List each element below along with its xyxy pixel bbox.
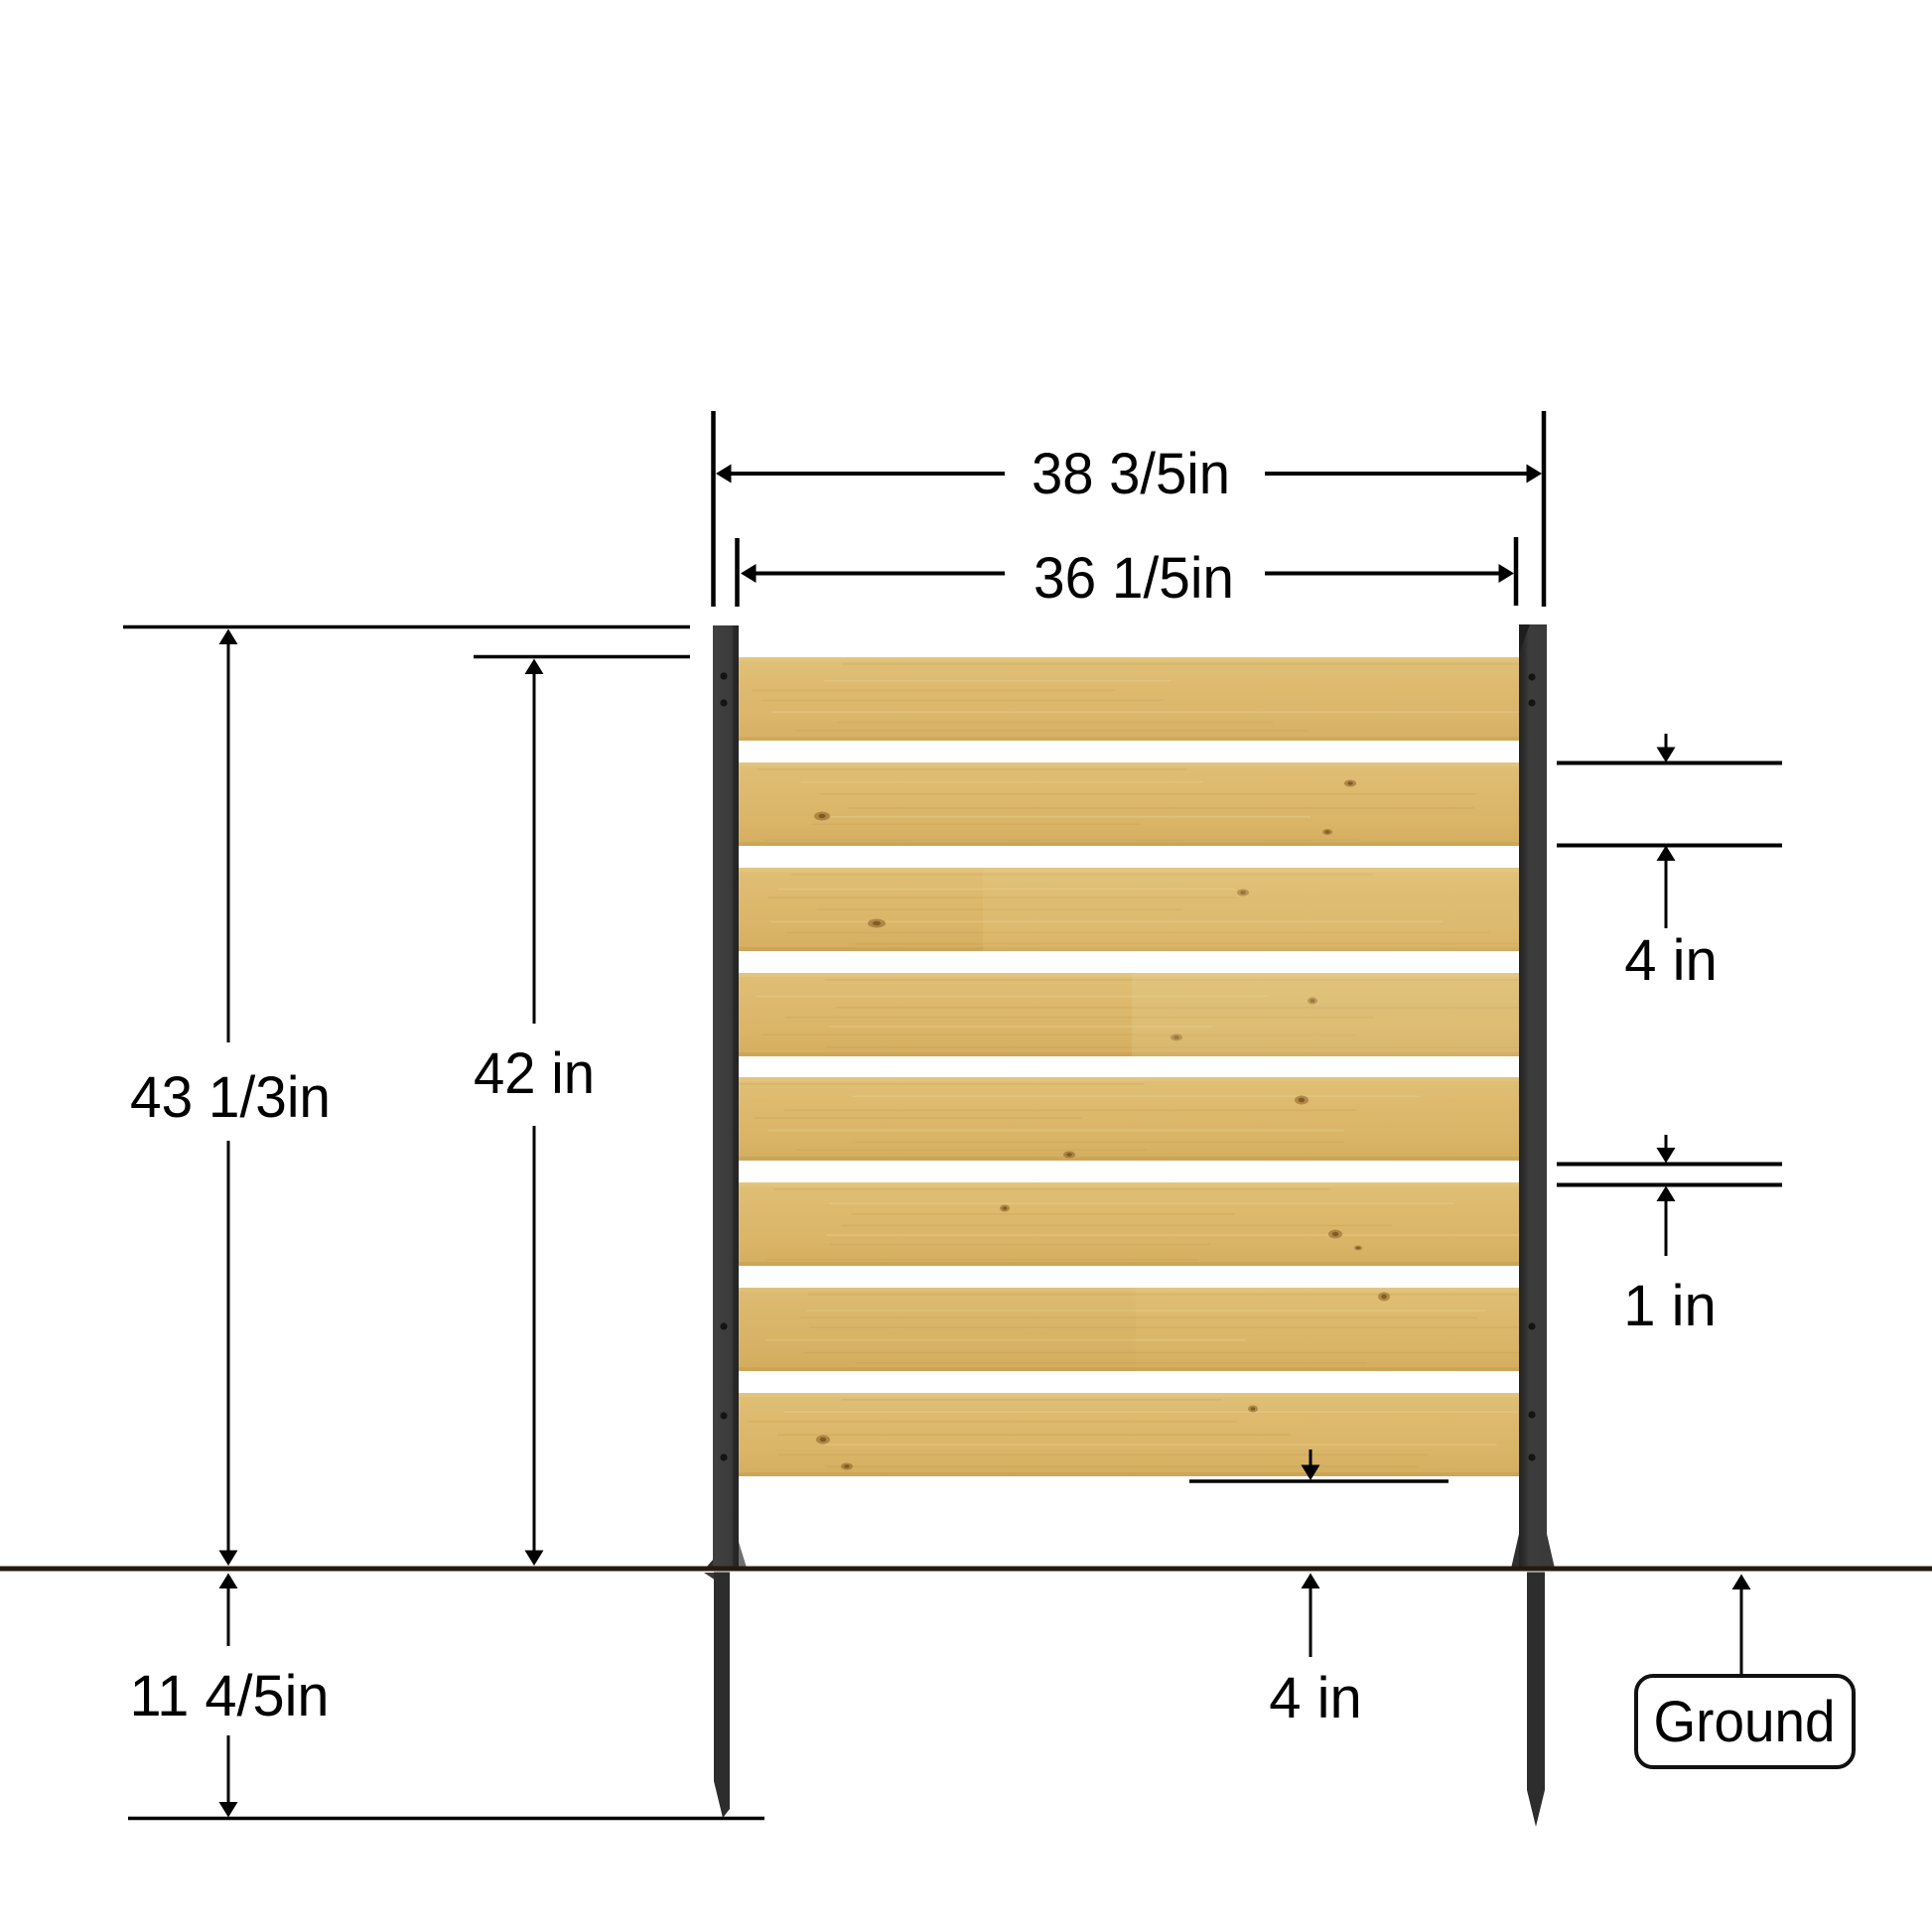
svg-text:4 in: 4 in [1624, 928, 1718, 993]
svg-text:38 3/5in: 38 3/5in [1032, 442, 1230, 506]
svg-text:Ground: Ground [1654, 1690, 1836, 1754]
svg-text:4 in: 4 in [1269, 1666, 1362, 1730]
svg-text:36 1/5in: 36 1/5in [1034, 546, 1234, 611]
svg-text:1 in: 1 in [1623, 1274, 1717, 1338]
svg-text:42 in: 42 in [474, 1041, 595, 1106]
svg-text:11 4/5in: 11 4/5in [130, 1664, 330, 1728]
svg-text:43 1/3in: 43 1/3in [130, 1065, 331, 1130]
